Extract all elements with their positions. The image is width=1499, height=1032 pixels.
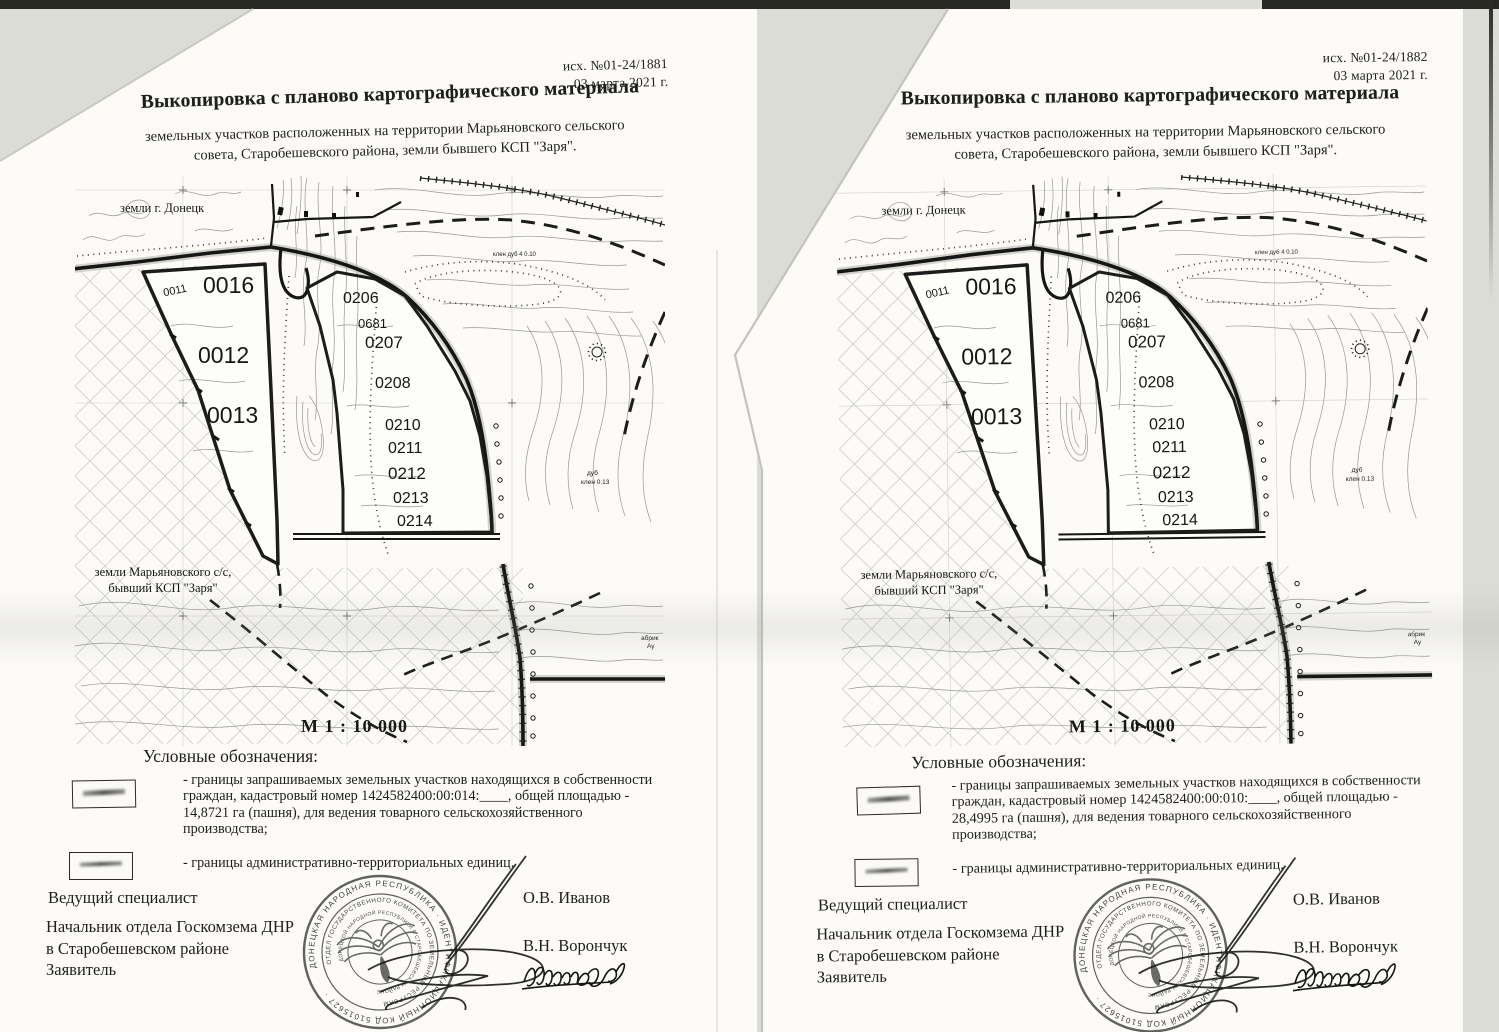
- footer-role-lead-specialist: Ведущий специалист: [818, 894, 968, 916]
- ref-block: исх. №01-24/1882 03 марта 2021 г.: [1178, 48, 1428, 87]
- scanned-documents-canvas: исх. №01-24/1881 03 марта 2021 г. Выкопи…: [0, 0, 1499, 1032]
- footer-role-applicant: Заявитель: [817, 967, 887, 988]
- legend-item-parcels: - границы запрашиваемых земельных участк…: [951, 772, 1468, 844]
- legend-title: Условные обозначения:: [143, 746, 318, 767]
- legend-line: граждан, кадастровый номер 1424582400:00…: [183, 788, 699, 804]
- document-page-right: исх. №01-24/1882 03 марта 2021 г. Выкопи…: [733, 9, 1463, 1032]
- footer-role-line: в Старобешевском районе: [46, 938, 294, 960]
- page-subtitle: земельных участков расположенных на терр…: [75, 113, 696, 168]
- legend-symbol-line: [80, 861, 122, 866]
- footer-role-line: в Старобешевском районе: [816, 942, 1064, 967]
- footer-role-line: Начальник отдела Госкомзема ДНР: [46, 916, 294, 938]
- legend-symbol-admin: [854, 858, 918, 887]
- scanner-edge-side: [1489, 0, 1493, 300]
- legend-symbol-line: [865, 868, 907, 873]
- legend-line: - границы запрашиваемых земельных участк…: [183, 772, 699, 788]
- scanner-edge-left: [0, 0, 1010, 9]
- legend-item-parcels: - границы запрашиваемых земельных участк…: [183, 772, 699, 838]
- page-title: Выкопировка с планово картографического …: [840, 82, 1460, 112]
- legend-symbol-line: [867, 795, 909, 803]
- footer-role-lead-specialist: Ведущий специалист: [48, 888, 197, 908]
- legend-line: 14,8721 га (пашня), для ведения товарног…: [183, 805, 699, 821]
- document-page-left: исх. №01-24/1881 03 марта 2021 г. Выкопи…: [0, 9, 757, 1032]
- footer-role-line: Начальник отдела Госкомзема ДНР: [816, 920, 1064, 945]
- legend-title: Условные обозначения:: [911, 750, 1086, 773]
- page-subtitle: земельных участков расположенных на терр…: [835, 119, 1455, 167]
- legend-symbol-parcel: [856, 786, 921, 816]
- topographic-map: [836, 172, 1433, 749]
- legend-symbol-line: [83, 789, 125, 796]
- legend-symbol-admin: [69, 852, 133, 880]
- page-title: Выкопировка с планово картографического …: [80, 74, 700, 115]
- signature-handwritten: [1291, 956, 1412, 1001]
- signature-handwritten: [520, 956, 640, 1000]
- footer-role-head: Начальник отдела Госкомзема ДНР в Староб…: [816, 920, 1064, 967]
- scanner-edge-right: [1262, 0, 1499, 9]
- topographic-map: [75, 176, 665, 746]
- footer-role-applicant: Заявитель: [46, 960, 116, 980]
- legend-line: производства;: [183, 821, 699, 837]
- legend-symbol-parcel: [72, 779, 136, 808]
- footer-role-head: Начальник отдела Госкомзема ДНР в Староб…: [46, 916, 294, 960]
